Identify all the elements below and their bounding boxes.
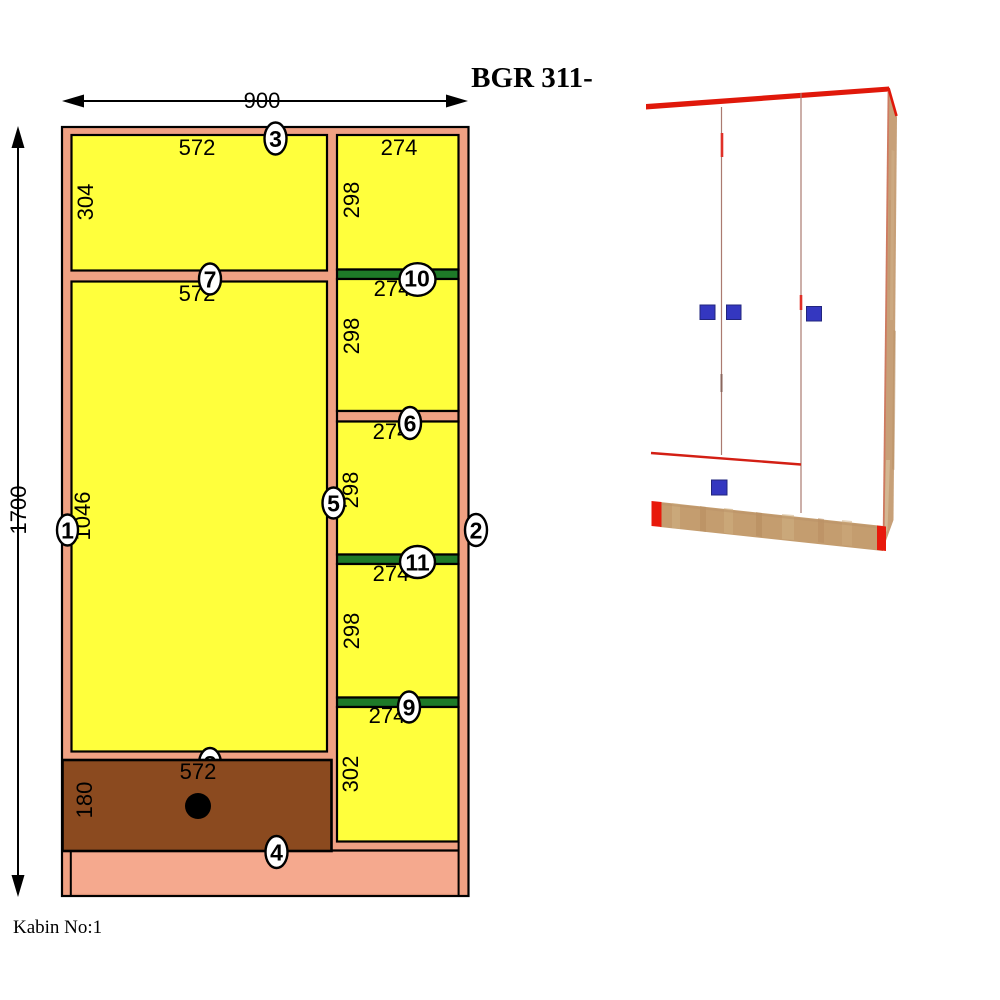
svg-text:5: 5 — [327, 491, 340, 517]
svg-text:2: 2 — [470, 518, 483, 544]
svg-text:900: 900 — [244, 88, 281, 113]
svg-text:10: 10 — [404, 266, 430, 292]
svg-text:180: 180 — [72, 782, 97, 819]
svg-text:6: 6 — [404, 411, 417, 437]
svg-text:298: 298 — [339, 182, 364, 219]
svg-text:572: 572 — [180, 759, 217, 784]
svg-text:298: 298 — [339, 318, 364, 355]
svg-text:1: 1 — [61, 518, 74, 544]
svg-text:Kabin No:1: Kabin No:1 — [13, 917, 102, 938]
svg-text:4: 4 — [270, 840, 283, 866]
svg-text:BGR 311-: BGR 311- — [471, 62, 593, 94]
svg-text:3: 3 — [269, 126, 282, 152]
svg-text:1700: 1700 — [6, 486, 31, 535]
svg-text:9: 9 — [403, 695, 416, 721]
svg-text:304: 304 — [73, 184, 98, 221]
svg-text:7: 7 — [204, 267, 217, 293]
svg-text:572: 572 — [179, 135, 216, 160]
svg-text:298: 298 — [339, 613, 364, 650]
svg-text:11: 11 — [405, 550, 430, 576]
svg-text:302: 302 — [338, 756, 363, 793]
svg-text:274: 274 — [381, 135, 418, 160]
